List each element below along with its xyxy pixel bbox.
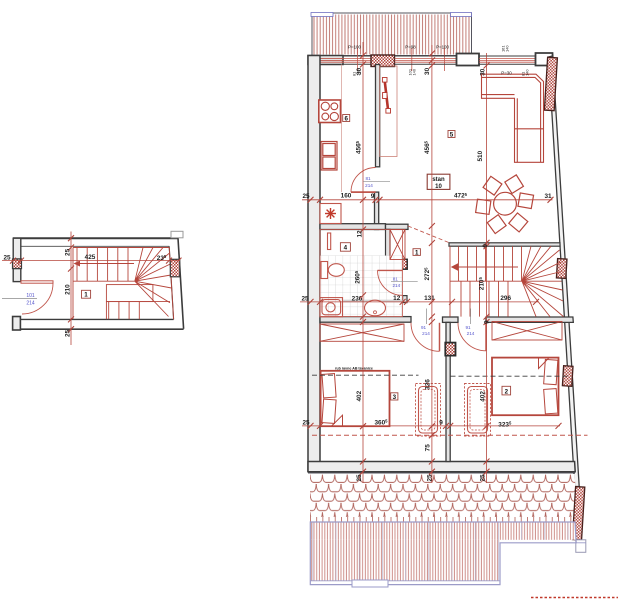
svg-text:214: 214 [365,183,373,188]
svg-text:510: 510 [477,150,484,161]
svg-text:25: 25 [302,419,310,426]
svg-text:P=98: P=98 [405,45,416,50]
svg-text:140: 140 [525,69,530,76]
svg-text:425: 425 [85,254,96,261]
svg-text:P=100: P=100 [436,45,449,50]
svg-text:30: 30 [479,68,486,76]
svg-text:12: 12 [357,230,364,238]
svg-text:25: 25 [427,474,434,482]
svg-text:2: 2 [505,388,509,395]
svg-text:stan: stan [432,177,445,183]
svg-text:75: 75 [425,444,432,452]
svg-text:6: 6 [344,115,348,122]
svg-text:5: 5 [450,131,454,138]
svg-text:9: 9 [483,320,490,324]
svg-text:10: 10 [435,184,442,190]
svg-text:P=30: P=30 [501,71,512,76]
svg-text:140: 140 [356,69,361,76]
svg-text:81: 81 [365,176,371,181]
svg-text:30: 30 [424,67,431,75]
svg-text:9: 9 [482,244,489,248]
svg-text:214: 214 [392,283,400,288]
svg-text:25: 25 [302,193,310,200]
svg-text:91: 91 [465,325,471,330]
svg-text:25: 25 [301,295,309,302]
svg-text:140: 140 [505,45,510,52]
svg-text:402: 402 [356,390,363,401]
svg-text:402: 402 [479,391,486,402]
svg-text:rub ravne AB tavanice: rub ravne AB tavanice [335,367,373,371]
svg-text:1: 1 [415,249,419,256]
svg-text:3: 3 [393,394,397,401]
svg-text:214: 214 [26,300,35,306]
svg-text:9: 9 [439,420,443,427]
svg-text:160: 160 [341,193,352,200]
svg-text:81: 81 [393,276,399,281]
svg-text:25: 25 [65,248,72,256]
svg-text:214: 214 [467,331,475,336]
svg-text:4: 4 [344,245,348,252]
svg-text:12: 12 [393,295,401,302]
svg-text:1: 1 [84,292,88,299]
svg-text:326: 326 [425,379,432,390]
svg-text:25: 25 [356,474,363,482]
svg-text:31: 31 [544,193,552,200]
svg-text:214: 214 [422,331,430,336]
svg-text:25: 25 [479,474,486,482]
svg-text:25: 25 [3,255,11,262]
svg-text:9: 9 [371,193,375,200]
svg-text:91: 91 [421,325,427,330]
svg-text:101: 101 [26,293,35,299]
svg-text:296: 296 [500,295,511,302]
svg-text:P=100: P=100 [348,45,361,50]
svg-text:210: 210 [65,284,72,295]
svg-text:140: 140 [412,68,417,75]
svg-text:25: 25 [65,330,72,338]
